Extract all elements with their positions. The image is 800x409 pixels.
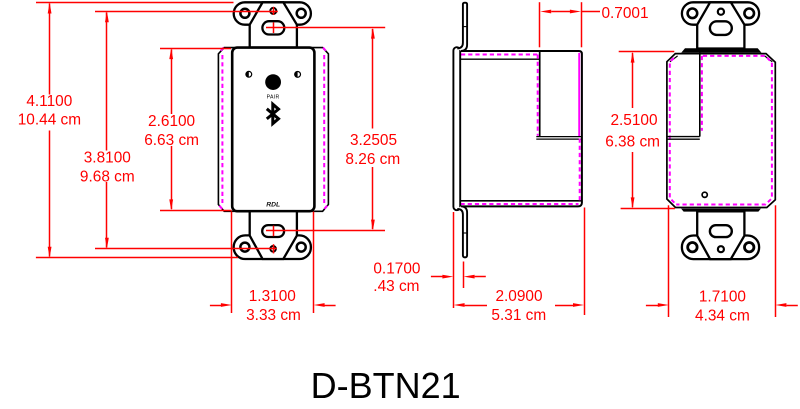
svg-text:2.5100: 2.5100 bbox=[610, 112, 657, 129]
svg-text:5.31 cm: 5.31 cm bbox=[491, 307, 546, 324]
svg-text:3.2505: 3.2505 bbox=[350, 132, 397, 149]
svg-text:2.0900: 2.0900 bbox=[495, 288, 542, 305]
svg-text:3.33 cm: 3.33 cm bbox=[246, 307, 301, 324]
svg-text:10.44 cm: 10.44 cm bbox=[18, 112, 81, 129]
svg-text:9.68 cm: 9.68 cm bbox=[80, 168, 135, 185]
svg-text:D-BTN21: D-BTN21 bbox=[311, 365, 461, 406]
svg-text:0.1700: 0.1700 bbox=[373, 261, 420, 278]
svg-text:8.26 cm: 8.26 cm bbox=[345, 151, 400, 168]
svg-text:2.6100: 2.6100 bbox=[148, 113, 195, 130]
svg-text:6.38 cm: 6.38 cm bbox=[605, 134, 660, 151]
svg-text:1.7100: 1.7100 bbox=[699, 289, 746, 306]
svg-text:1.3100: 1.3100 bbox=[249, 288, 296, 305]
svg-text:6.63 cm: 6.63 cm bbox=[144, 132, 199, 149]
svg-text:.43 cm: .43 cm bbox=[373, 278, 419, 295]
svg-text:4.34 cm: 4.34 cm bbox=[695, 307, 750, 324]
svg-text:PAIR: PAIR bbox=[267, 95, 280, 101]
svg-text:0.7001: 0.7001 bbox=[601, 5, 648, 22]
svg-text:4.1100: 4.1100 bbox=[26, 93, 72, 110]
svg-text:3.8100: 3.8100 bbox=[84, 150, 131, 167]
svg-text:RDL: RDL bbox=[266, 202, 280, 209]
